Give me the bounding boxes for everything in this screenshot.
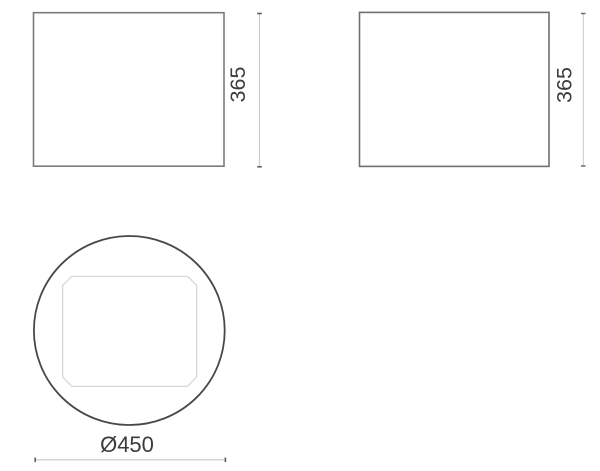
svg-text:365: 365 bbox=[552, 67, 576, 103]
svg-text:365: 365 bbox=[226, 67, 250, 103]
svg-text:Ø450: Ø450 bbox=[100, 432, 154, 457]
